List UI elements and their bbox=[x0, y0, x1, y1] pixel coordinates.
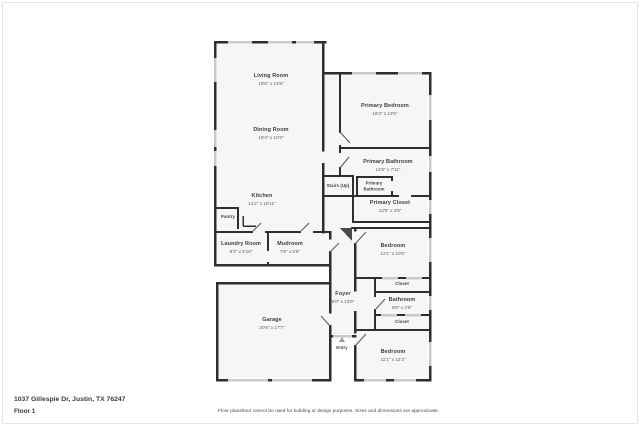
room-label-kitchen: Kitchen 14'2" x 10'11" bbox=[248, 193, 275, 207]
room-name: Kitchen bbox=[248, 193, 275, 200]
room-name: Foyer bbox=[332, 291, 355, 298]
room-dims: 13'8" x 4'8" bbox=[370, 208, 410, 214]
room-dims: 14'2" x 10'11" bbox=[248, 201, 275, 207]
room-name: Bathroom bbox=[389, 297, 416, 304]
room-dims: 12'1" x 10'5" bbox=[380, 251, 405, 257]
room-name: Living Room bbox=[254, 73, 288, 80]
room-label-foyer: Foyer 5'0" x 13'9" bbox=[332, 291, 355, 305]
property-address: 1037 Gillespie Dr, Justin, TX 76247 bbox=[14, 396, 125, 403]
room-label-bedroom-1: Bedroom 12'1" x 10'5" bbox=[380, 243, 405, 257]
room-label-living-room: Living Room 19'6" x 13'9" bbox=[254, 73, 288, 87]
room-label-bathroom: Bathroom 9'6" x 4'9" bbox=[389, 297, 416, 311]
room-name: Mudroom bbox=[277, 241, 303, 248]
room-name: Stairs (Up) bbox=[327, 183, 350, 189]
room-name: Dining Room bbox=[253, 127, 288, 134]
room-dims: 14'5" x 7'11" bbox=[363, 167, 413, 173]
room-name: Closet bbox=[395, 281, 409, 287]
room-name: Entry bbox=[336, 345, 347, 351]
floor-plan-page: Living Room 19'6" x 13'9" Dining Room 19… bbox=[0, 0, 640, 426]
room-label-bedroom-2: Bedroom 11'1" x 12'3" bbox=[381, 349, 406, 363]
room-name: Primary Bathroom bbox=[359, 180, 389, 191]
floor-label: Floor 1 bbox=[14, 408, 125, 415]
room-label-mudroom: Mudroom 7'6" x 5'9" bbox=[277, 241, 303, 255]
room-label-dining-room: Dining Room 19'4" x 10'3" bbox=[253, 127, 288, 141]
room-label-primary-closet: Primary Closet 13'8" x 4'8" bbox=[370, 200, 410, 214]
room-dims: 16'4" x 13'5" bbox=[361, 111, 409, 117]
room-label-entry: Entry bbox=[336, 345, 347, 351]
room-name: Bedroom bbox=[381, 349, 406, 356]
room-name: Laundry Room bbox=[221, 241, 261, 248]
room-dims: 9'2" x 5'10" bbox=[221, 249, 261, 255]
room-label-garage: Garage 20'6" x 17'7" bbox=[259, 317, 284, 331]
room-label-pantry: Pantry bbox=[221, 214, 235, 220]
room-label-closet-2: Closet bbox=[395, 319, 409, 325]
floor-plan-drawing bbox=[0, 0, 640, 426]
room-name: Garage bbox=[259, 317, 284, 324]
disclaimer-text: Floor plans/tour cannot be used for buil… bbox=[218, 409, 439, 414]
room-dims: 19'6" x 13'9" bbox=[254, 81, 288, 87]
room-name: Bedroom bbox=[380, 243, 405, 250]
room-name: Pantry bbox=[221, 214, 235, 220]
room-dims: 19'4" x 10'3" bbox=[253, 135, 288, 141]
room-label-primary-bathroom-wc: Primary Bathroom bbox=[359, 180, 389, 191]
room-label-stairs: Stairs (Up) bbox=[327, 183, 350, 189]
room-label-laundry-room: Laundry Room 9'2" x 5'10" bbox=[221, 241, 261, 255]
room-dims: 9'6" x 4'9" bbox=[389, 305, 416, 311]
footer-address-block: 1037 Gillespie Dr, Justin, TX 76247 Floo… bbox=[14, 396, 125, 415]
room-dims: 7'6" x 5'9" bbox=[277, 249, 303, 255]
room-name: Primary Closet bbox=[370, 200, 410, 207]
room-dims: 11'1" x 12'3" bbox=[381, 357, 406, 363]
room-label-primary-bathroom: Primary Bathroom 14'5" x 7'11" bbox=[363, 159, 413, 173]
room-name: Primary Bathroom bbox=[363, 159, 413, 166]
room-label-closet-1: Closet bbox=[395, 281, 409, 287]
room-dims: 20'6" x 17'7" bbox=[259, 325, 284, 331]
room-name: Primary Bedroom bbox=[361, 103, 409, 110]
room-dims: 5'0" x 13'9" bbox=[332, 299, 355, 305]
room-label-primary-bedroom: Primary Bedroom 16'4" x 13'5" bbox=[361, 103, 409, 117]
room-name: Closet bbox=[395, 319, 409, 325]
